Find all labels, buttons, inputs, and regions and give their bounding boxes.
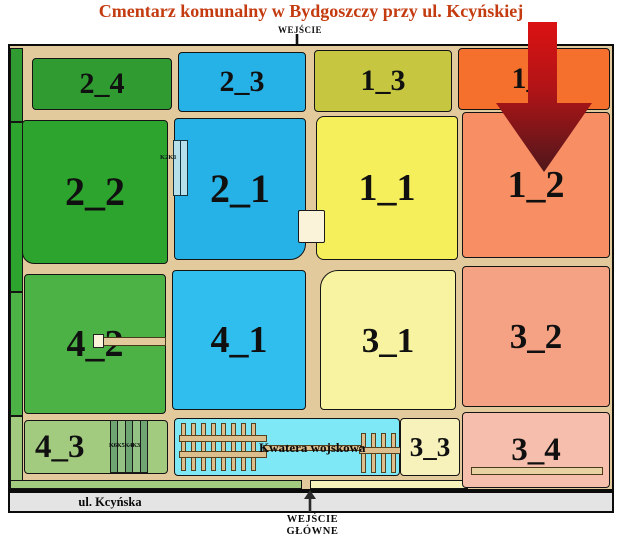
grave-row-marker: [231, 423, 236, 471]
building-cell: [181, 141, 187, 195]
section-3-4-label: 3_4: [511, 434, 561, 467]
section-1-3-label: 1_3: [361, 66, 406, 96]
section-4-1-label: 4_1: [211, 321, 268, 359]
grave-row-marker: [211, 423, 216, 471]
section-4-3: 4_3 K6K5K4K3: [24, 420, 168, 474]
section-2-1: 2_1: [174, 118, 306, 260]
entrance-main-line1: WEJŚCIE: [240, 514, 385, 526]
buildings-k6k5k4k3-label: K6K5K4K3: [109, 442, 140, 449]
grave-row-marker: [181, 423, 186, 471]
entrance-main-label: WEJŚCIE GŁÓWNE: [240, 514, 385, 538]
section-2-2: 2_2: [22, 120, 168, 264]
section-3-3-label: 3_3: [410, 434, 451, 461]
entrance-main-line2: GŁÓWNE: [240, 526, 385, 538]
section-1-1: 1_1: [316, 116, 458, 260]
street-label: ul. Kcyńska: [40, 493, 180, 511]
edge-strip-left-top: [10, 48, 23, 122]
grave-row-marker: [201, 423, 206, 471]
section-4-3-label: 4_3: [35, 431, 85, 464]
edge-strip-left-bottom: [10, 416, 23, 484]
edge-strip-bottom-yellow: [310, 480, 468, 489]
small-building: [93, 334, 104, 348]
military-graves-rows: [181, 423, 265, 473]
section-4-1: 4_1: [172, 270, 306, 410]
chapel-building: [298, 210, 325, 243]
edge-strip-bottom-green: [10, 480, 302, 489]
section-2-3: 2_3: [178, 52, 306, 112]
military-quarter-label: Kwatera wojskowa: [259, 440, 366, 456]
entrance-main-arrow-icon: [303, 490, 317, 512]
section-2-2-label: 2_2: [65, 172, 125, 212]
grave-row-marker: [221, 423, 226, 471]
grave-row-marker: [241, 423, 246, 471]
edge-strip-left-low: [10, 292, 23, 416]
section-military-quarter: Kwatera wojskowa: [174, 418, 400, 476]
highlight-arrow-icon: [480, 15, 610, 180]
section-3-3: 3_3: [400, 418, 460, 476]
grave-row-marker: [251, 423, 256, 471]
grave-alley: [179, 435, 267, 442]
building-strip: [140, 420, 148, 473]
section-2-1-label: 2_1: [210, 169, 270, 209]
section-3-4: 3_4: [462, 412, 610, 488]
section-3-2-label: 3_2: [510, 319, 563, 354]
grave-alley: [179, 451, 267, 458]
section-2-4-label: 2_4: [80, 69, 125, 99]
path-notch: [102, 337, 166, 346]
building-cell: [174, 141, 181, 195]
grave-row-marker: [191, 423, 196, 471]
section-2-4: 2_4: [32, 58, 172, 110]
section-4-2: 4_2: [24, 274, 166, 414]
section-2-3-label: 2_3: [220, 67, 265, 97]
section-3-2: 3_2: [462, 266, 610, 407]
building-k2k1-label: K2K1: [160, 154, 177, 161]
section-1-1-label: 1_1: [359, 169, 416, 207]
section-3-1-label: 3_1: [362, 323, 415, 358]
section-3-1: 3_1: [320, 270, 456, 410]
inner-path-bar: [471, 467, 603, 475]
section-1-3: 1_3: [314, 50, 452, 112]
building-k2k1: [173, 140, 188, 196]
